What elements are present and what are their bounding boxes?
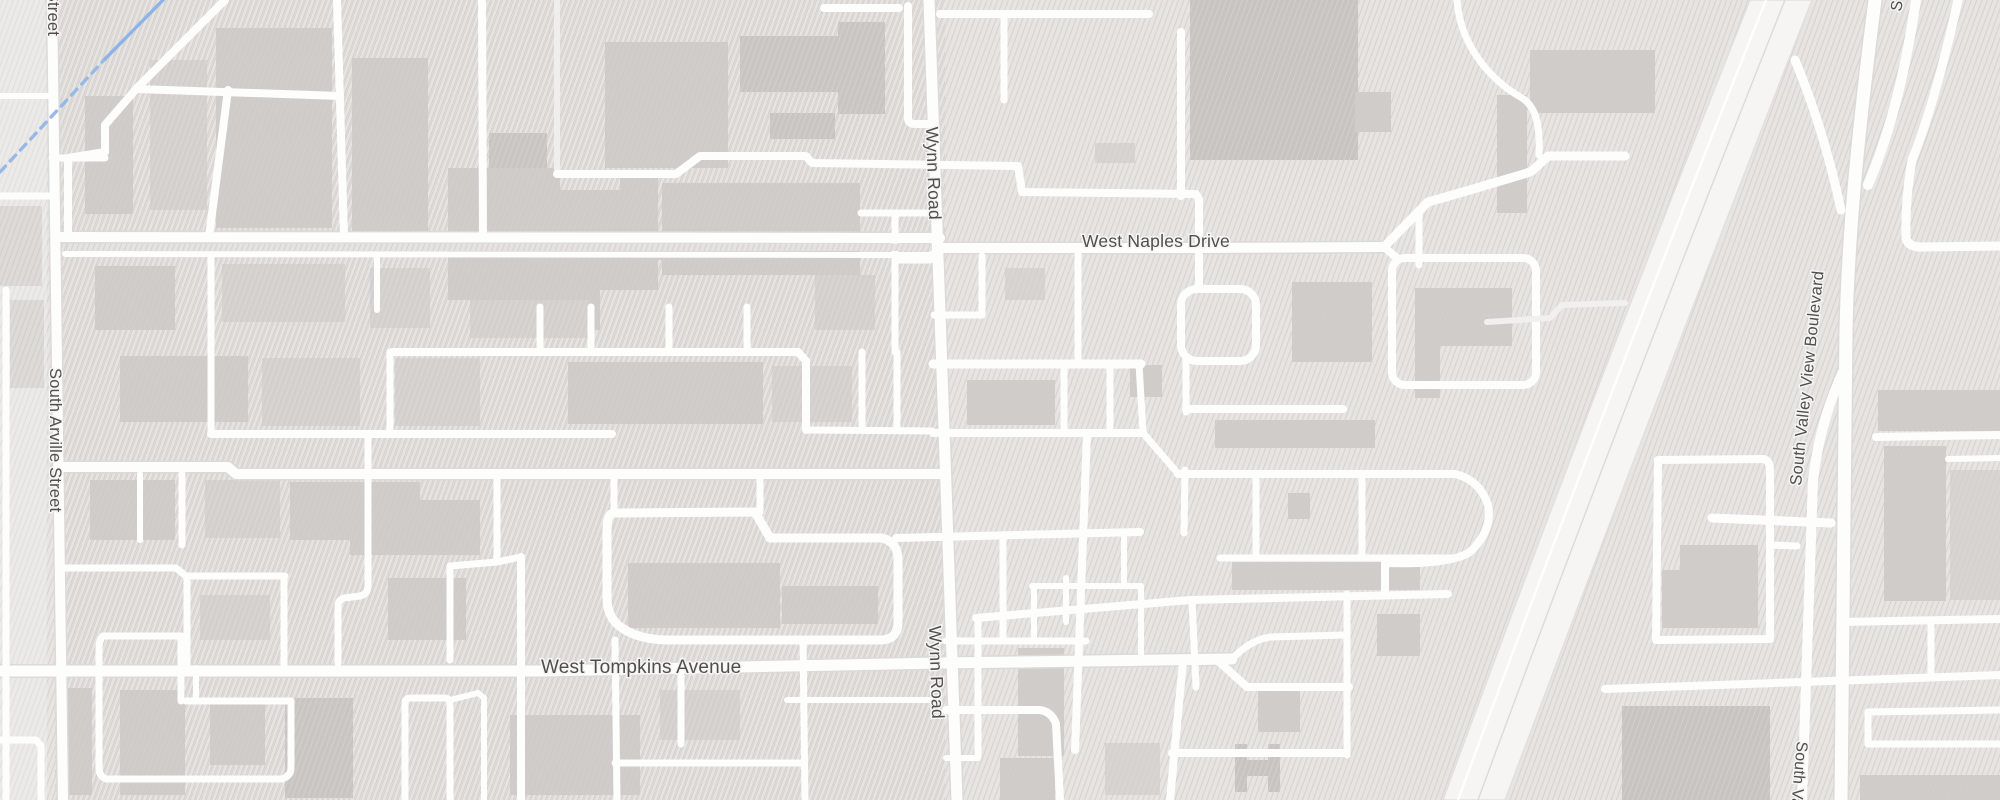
svg-text:South Arville Street: South Arville Street (44, 0, 62, 36)
svg-text:West Tompkins Avenue: West Tompkins Avenue (541, 657, 741, 678)
svg-text:Wynn Road: Wynn Road (922, 126, 945, 220)
svg-text:S: S (1888, 0, 1907, 13)
svg-text:West Naples Drive: West Naples Drive (1082, 231, 1230, 251)
svg-text:Wynn Road: Wynn Road (925, 625, 948, 719)
svg-text:South Arville Street: South Arville Street (46, 368, 64, 513)
